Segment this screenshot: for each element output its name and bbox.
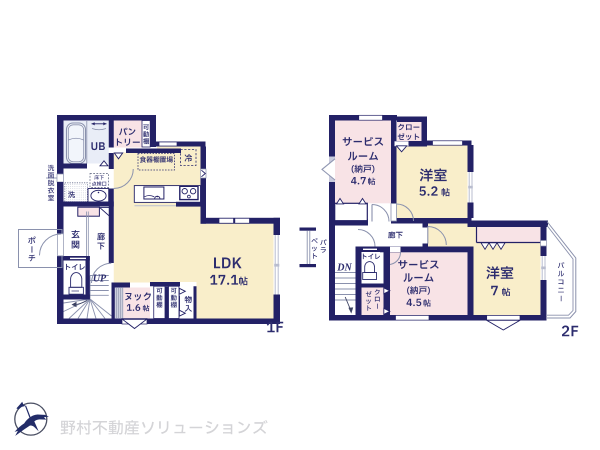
svg-text:UP: UP (93, 274, 107, 285)
svg-text:DN: DN (336, 263, 352, 274)
